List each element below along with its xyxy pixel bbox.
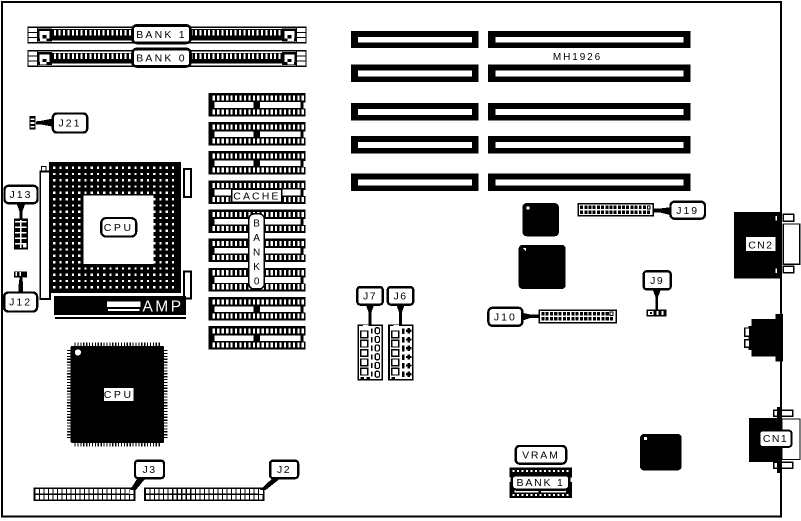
svg-text:B: B (253, 219, 260, 230)
svg-text:J21: J21 (59, 118, 82, 130)
svg-text:CN1: CN1 (763, 433, 788, 445)
svg-text:BANK 1: BANK 1 (136, 29, 187, 41)
svg-text:J13: J13 (10, 189, 33, 201)
svg-text:J19: J19 (676, 205, 699, 217)
svg-text:J3: J3 (142, 464, 156, 476)
svg-text:J10: J10 (494, 311, 517, 323)
svg-text:J12: J12 (9, 297, 32, 309)
svg-text:BANK 0: BANK 0 (136, 52, 187, 64)
svg-text:CPU: CPU (104, 389, 134, 401)
svg-text:CACHE: CACHE (233, 190, 280, 202)
svg-text:MH1926: MH1926 (553, 52, 602, 63)
svg-text:J9: J9 (650, 275, 664, 287)
svg-text:VRAM: VRAM (522, 449, 560, 461)
svg-text:CN2: CN2 (748, 239, 773, 251)
svg-text:N: N (253, 248, 260, 259)
svg-text:J7: J7 (363, 290, 377, 302)
svg-text:J2: J2 (277, 464, 291, 476)
svg-text:J6: J6 (393, 290, 407, 302)
svg-text:0: 0 (254, 277, 260, 288)
svg-text:A: A (253, 233, 260, 244)
svg-text:K: K (253, 262, 260, 273)
svg-text:CPU: CPU (104, 222, 134, 234)
svg-text:AMP: AMP (142, 299, 183, 316)
svg-text:BANK 1: BANK 1 (517, 477, 565, 489)
